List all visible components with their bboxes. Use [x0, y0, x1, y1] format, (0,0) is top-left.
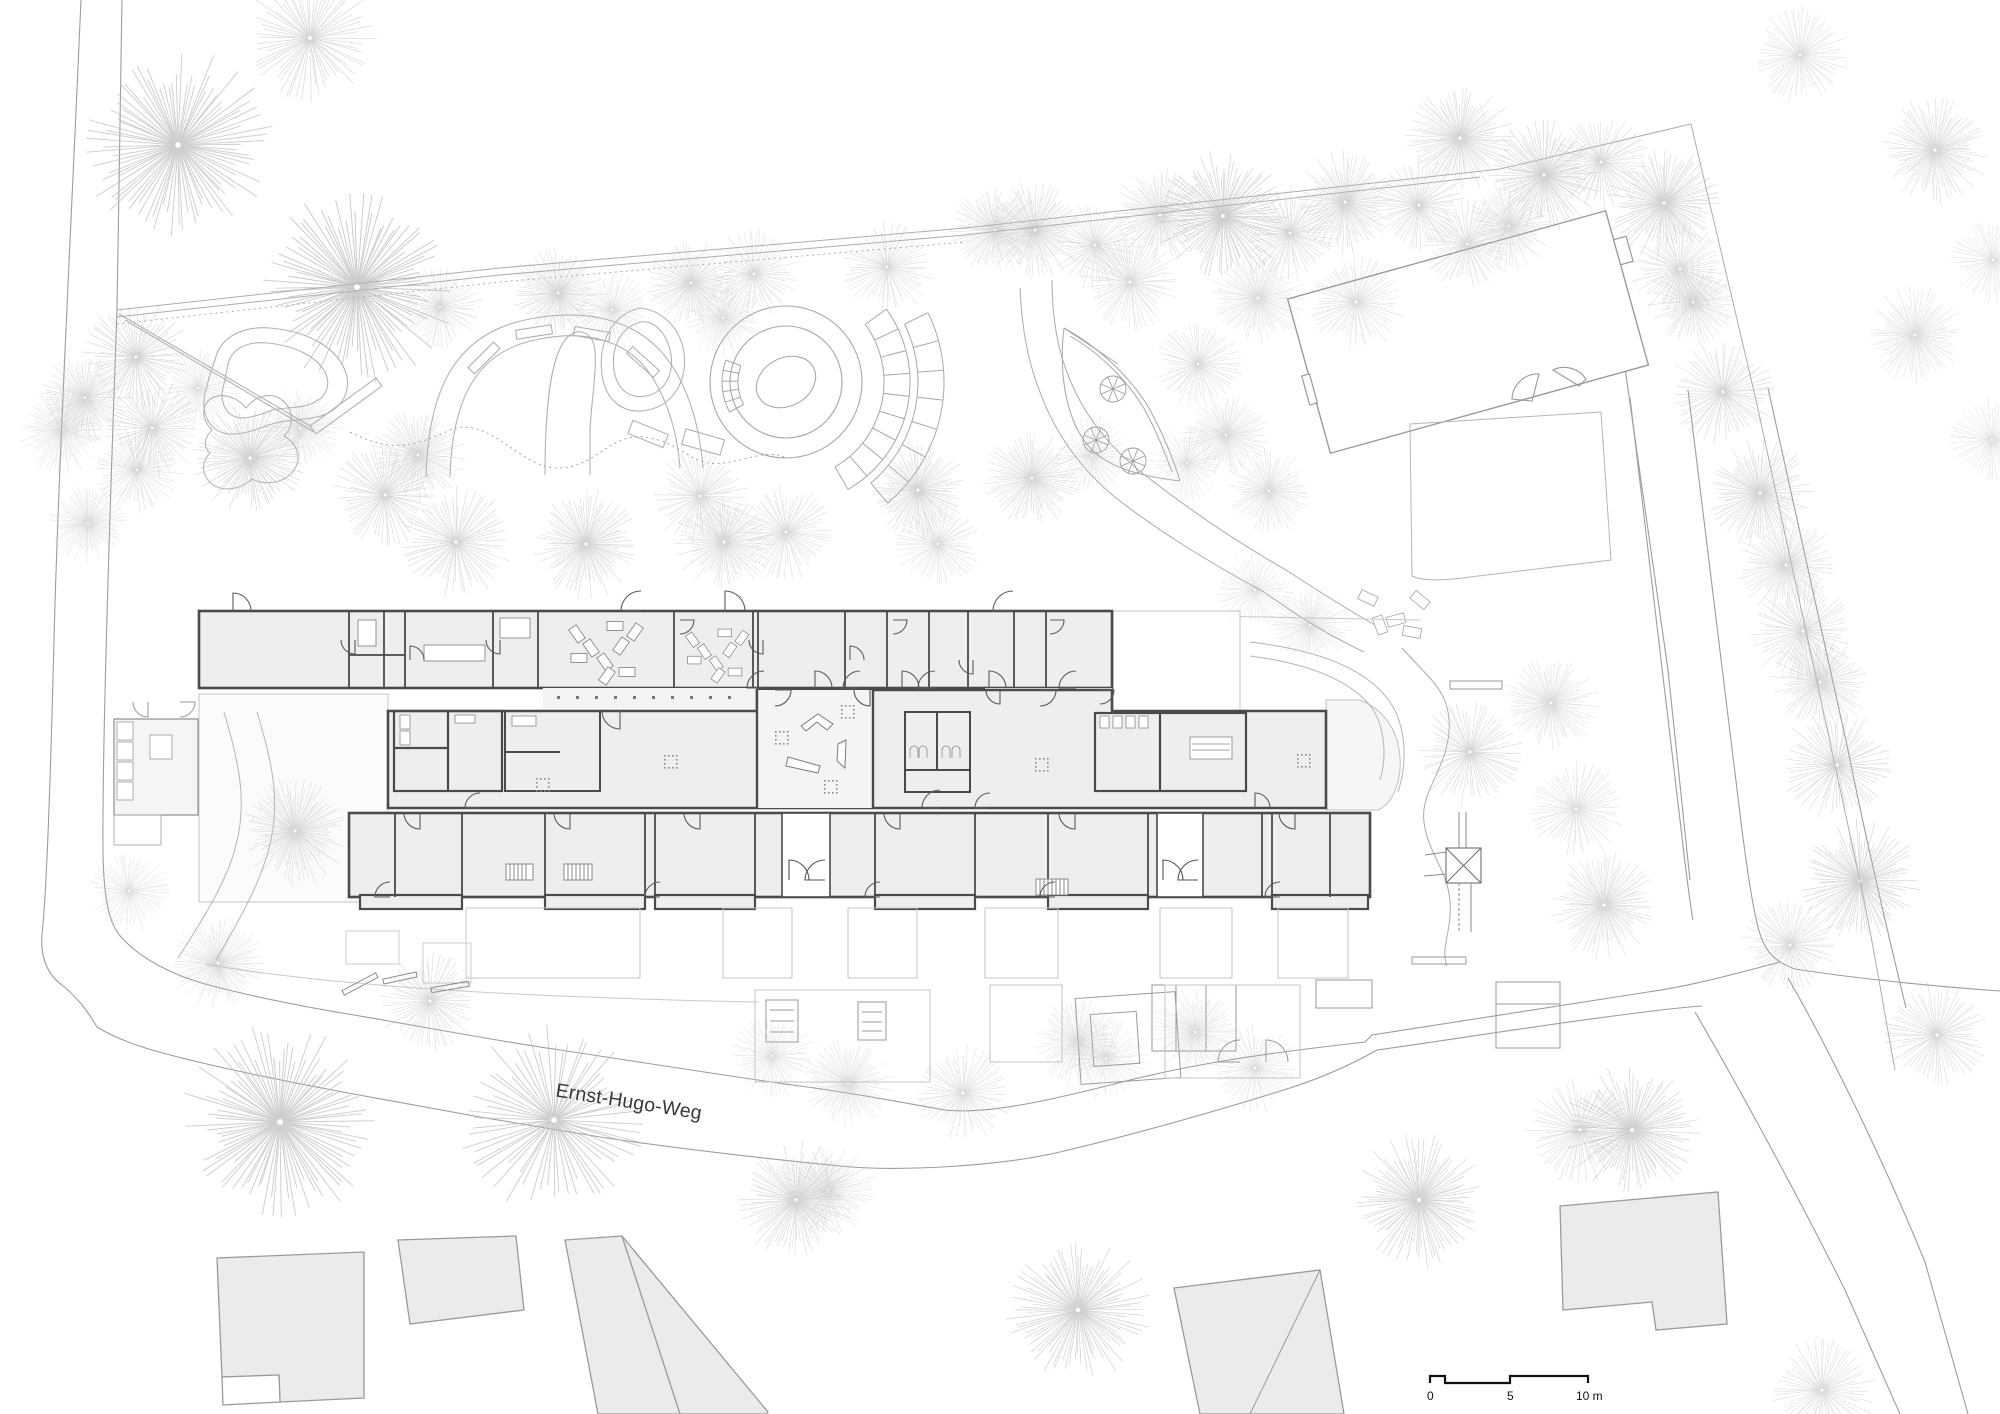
svg-text:5: 5 — [1507, 1389, 1514, 1403]
svg-text:0: 0 — [1427, 1389, 1434, 1403]
svg-text:10 m: 10 m — [1576, 1389, 1603, 1403]
